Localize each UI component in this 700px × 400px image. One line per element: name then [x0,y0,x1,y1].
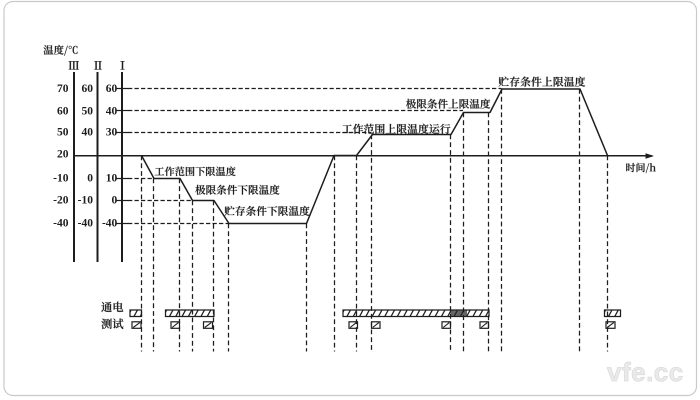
svg-text:0: 0 [87,173,93,185]
svg-text:50: 50 [57,127,69,139]
svg-text:20: 20 [57,149,69,161]
svg-text:-40: -40 [102,218,118,230]
svg-text:-40: -40 [78,218,94,230]
svg-text:-40: -40 [53,218,69,230]
svg-text:-20: -20 [53,195,69,207]
svg-text:60: 60 [82,83,94,95]
svg-text:70: 70 [57,83,69,95]
svg-text:30: 30 [106,127,118,139]
svg-text:vfe.cc: vfe.cc [607,357,684,387]
svg-text:60: 60 [106,83,118,95]
svg-text:40: 40 [82,127,94,139]
svg-text:10: 10 [106,173,118,185]
svg-text:-10: -10 [53,173,69,185]
svg-text:50: 50 [82,105,94,117]
svg-text:60: 60 [57,105,69,117]
svg-text:40: 40 [106,105,118,117]
svg-text:-10: -10 [78,195,94,207]
